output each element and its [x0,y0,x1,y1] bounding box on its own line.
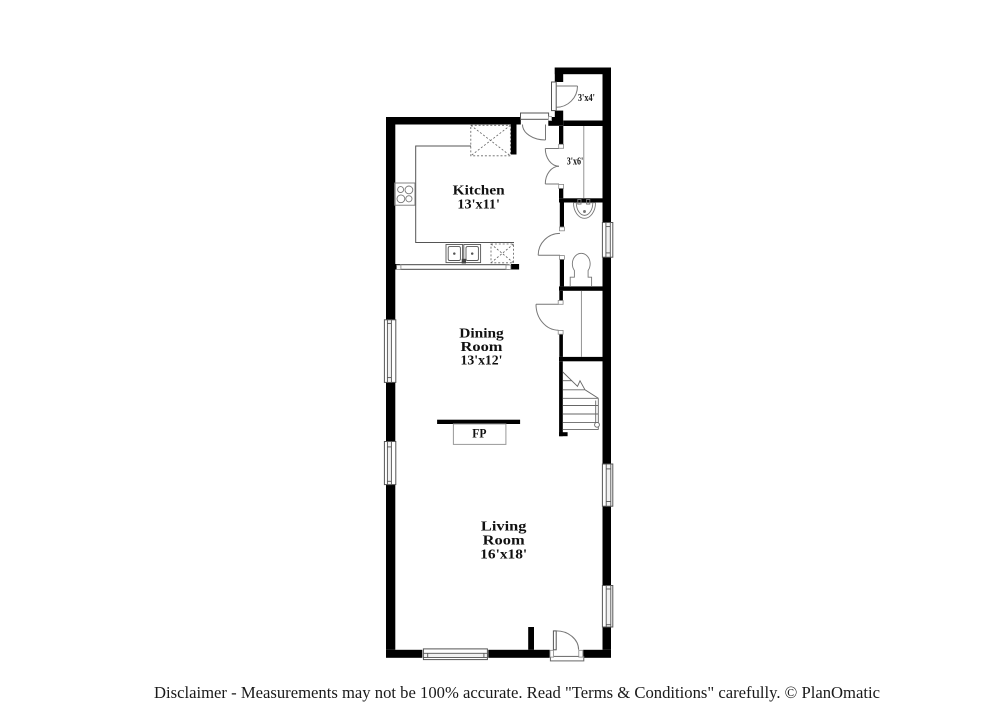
svg-text:13'x11': 13'x11' [457,198,500,213]
svg-text:3'x6': 3'x6' [567,156,584,167]
svg-text:3'x4': 3'x4' [578,93,595,104]
svg-text:Living: Living [481,520,527,535]
svg-text:13'x12': 13'x12' [461,354,503,369]
svg-text:FP: FP [472,426,486,440]
svg-text:Kitchen: Kitchen [453,183,505,198]
svg-text:16'x18': 16'x18' [480,547,527,562]
svg-text:Disclaimer - Measurements may: Disclaimer - Measurements may not be 100… [154,683,880,702]
